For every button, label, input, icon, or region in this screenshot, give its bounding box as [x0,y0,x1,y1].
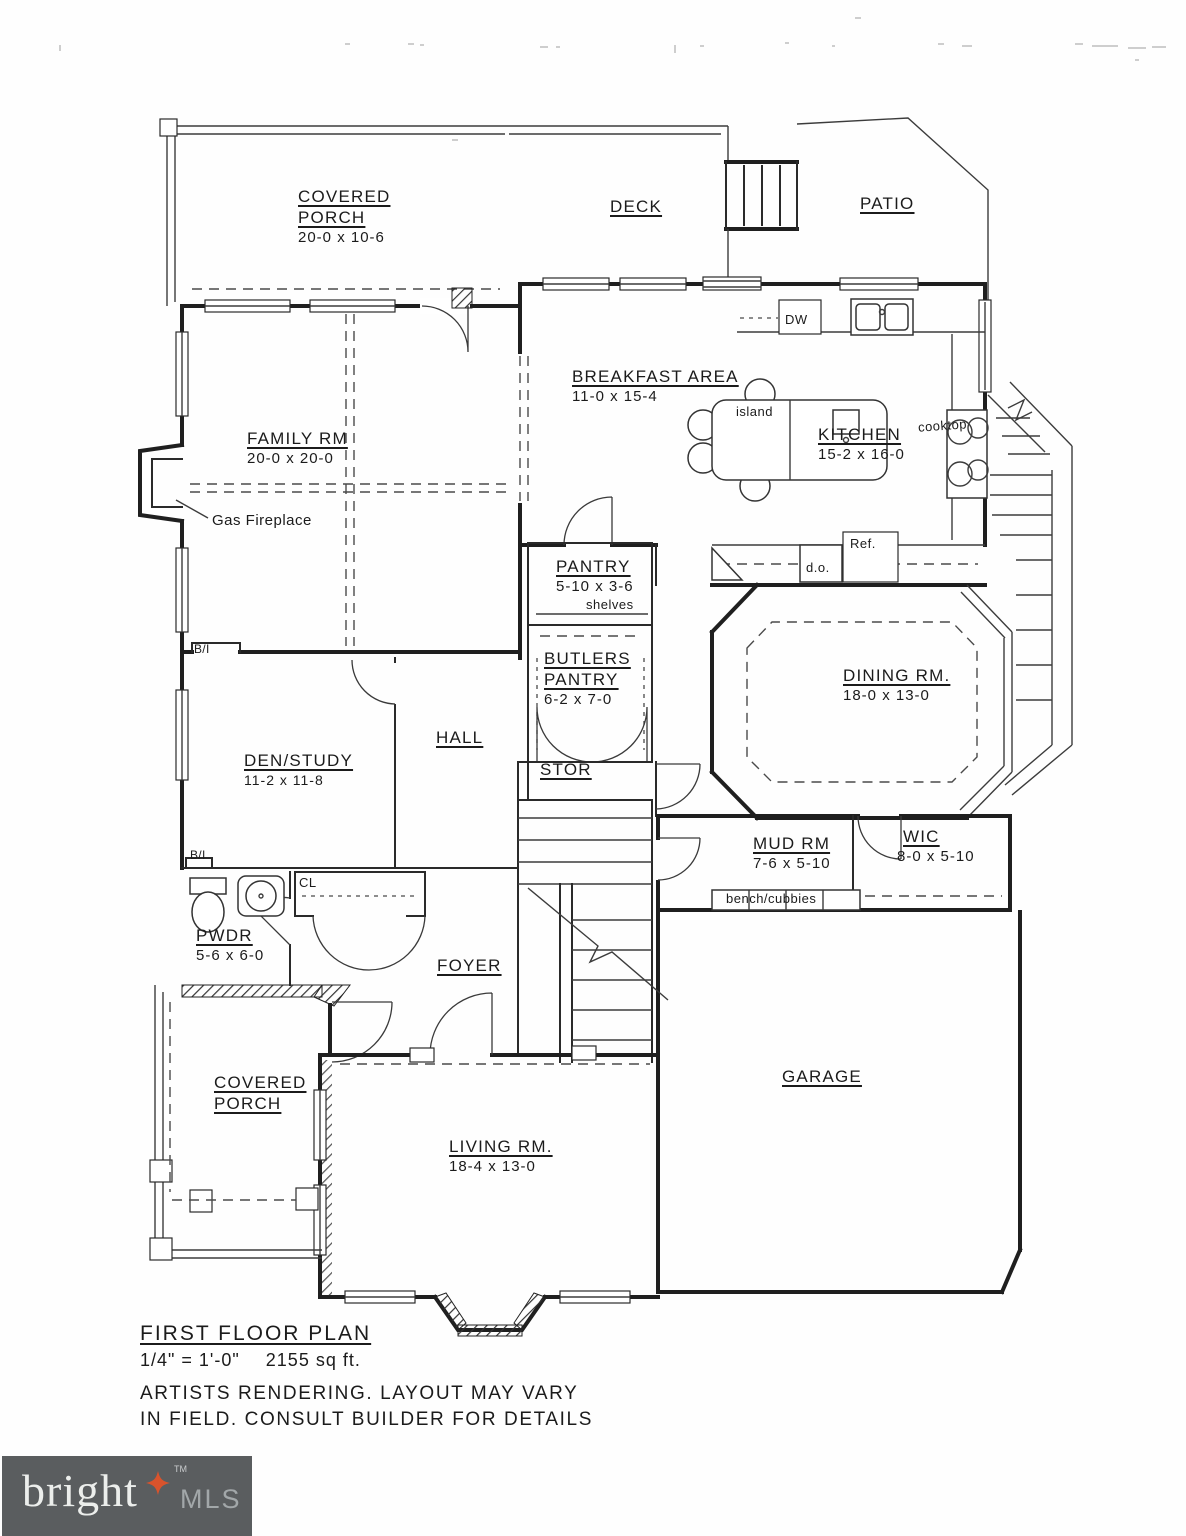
den-dims: 11-2 x 11-8 [244,772,353,790]
family-room-walls [140,284,528,658]
room-label-pwdr: PWDR 5-6 x 6-0 [196,925,264,966]
dw-text: DW [785,312,808,327]
breakfast-dims: 11-0 x 15-4 [572,388,739,407]
room-label-den: DEN/STUDY 11-2 x 11-8 [244,750,353,790]
scan-noise [60,18,1186,140]
room-label-kitchen: KITCHEN 15-2 x 16-0 [818,424,905,465]
room-label-living: LIVING RM. 18-4 x 13-0 [449,1136,553,1177]
breakfast-name: BREAKFAST AREA [572,366,739,387]
garage-walls [658,910,1020,1292]
do-label: d.o. [806,560,830,576]
room-label-mud: MUD RM 7-6 x 5-10 [753,833,831,874]
den-name: DEN/STUDY [244,750,353,771]
mud-name: MUD RM [753,833,830,854]
bi-label-1: B/I [194,642,210,657]
bi-label-2: B/I [190,848,206,863]
island-label: island [736,404,773,420]
plan-disclaimer: ARTISTS RENDERING. LAYOUT MAY VARY IN FI… [140,1381,593,1432]
room-label-butlers: BUTLERS PANTRY 6-2 x 7-0 [544,648,639,710]
island-text: island [736,404,773,419]
dining-name: DINING RM. [843,665,950,686]
room-label-dining: DINING RM. 18-0 x 13-0 [843,665,950,706]
bi-2-text: B/I [190,848,206,862]
living-name: LIVING RM. [449,1136,553,1157]
bench-cubbies-label: bench/cubbies [726,891,816,907]
cl-text: CL [299,875,317,890]
plan-area: 2155 sq ft. [266,1350,361,1370]
ref-text: Ref. [850,536,876,551]
plan-scale: 1/4" = 1'-0" [140,1350,240,1370]
plan-disclaimer-line2: IN FIELD. CONSULT BUILDER FOR DETAILS [140,1407,593,1433]
family-name: FAMILY RM [247,428,348,449]
cooktop-text: cooktop [917,416,967,434]
room-label-breakfast: BREAKFAST AREA 11-0 x 15-4 [572,366,739,407]
living-room-walls [314,1055,658,1336]
wic-name: WIC [903,826,940,847]
living-dims: 18-4 x 13-0 [449,1158,553,1177]
mud-dims: 7-6 x 5-10 [753,855,831,874]
cl-label: CL [299,875,317,891]
bi-1-text: B/I [194,642,210,656]
pwdr-name: PWDR [196,925,253,946]
dining-dims: 18-0 x 13-0 [843,687,950,706]
room-label-garage: GARAGE [782,1066,862,1088]
stor-name: STOR [540,759,592,780]
room-label-hall: HALL [436,727,483,749]
patio-name: PATIO [860,193,915,214]
deck-name: DECK [610,196,662,217]
room-label-wic: WIC 8-0 x 5-10 [903,826,975,867]
room-label-covered-porch-bottom: COVERED PORCH [214,1072,324,1115]
garage-name: GARAGE [782,1066,862,1087]
brightmls-star-icon [145,1470,171,1496]
room-label-pantry: PANTRY 5-10 x 3-6 [556,556,634,597]
shelves-text: shelves [586,597,634,612]
exterior-steps-right [988,382,1072,795]
plan-scale-line: 1/4" = 1'-0"2155 sq ft. [140,1350,593,1371]
wic-dims: 8-0 x 5-10 [897,848,975,867]
bench-cubbies-text: bench/cubbies [726,891,816,906]
ref-label: Ref. [850,536,876,552]
room-label-patio: PATIO [860,193,915,215]
room-label-deck: DECK [610,196,662,218]
butlers-name: BUTLERS PANTRY [544,648,639,691]
room-label-foyer: FOYER [437,955,502,977]
dw-label: DW [785,312,808,328]
room-label-family: FAMILY RM 20-0 x 20-0 [247,428,348,469]
do-text: d.o. [806,560,830,575]
plan-footer: FIRST FLOOR PLAN 1/4" = 1'-0"2155 sq ft.… [140,1322,593,1432]
covered-porch-bottom-name: COVERED PORCH [214,1072,324,1115]
covered-porch-top-name: COVERED PORCH [298,186,418,229]
butlers-dims: 6-2 x 7-0 [544,691,639,710]
brightmls-tm: TM [174,1464,187,1474]
family-dims: 20-0 x 20-0 [247,450,348,469]
pantry-dims: 5-10 x 3-6 [556,578,634,597]
kitchen-dims: 15-2 x 16-0 [818,446,905,465]
brightmls-brand-text: bright [22,1464,138,1517]
brightmls-suffix-text: MLS [180,1484,242,1515]
room-label-stor: STOR [540,759,592,781]
covered-porch-bottom-outline [150,985,322,1260]
plan-title: FIRST FLOOR PLAN [140,1322,593,1346]
cooktop-label: cooktop [917,416,967,436]
room-label-covered-porch-top: COVERED PORCH 20-0 x 10-6 [298,186,418,248]
floorplan-drawing [0,0,1186,1536]
pwdr-dims: 5-6 x 6-0 [196,947,264,966]
hall-name: HALL [436,727,483,748]
foyer-walls [182,985,658,1064]
foyer-name: FOYER [437,955,502,976]
covered-porch-top-dims: 20-0 x 10-6 [298,229,418,248]
floorplan-page: COVERED PORCH 20-0 x 10-6 DECK PATIO BRE… [0,0,1186,1536]
gas-fireplace-label: Gas Fireplace [212,512,312,531]
shelves-label: shelves [586,597,634,613]
stairs [518,800,668,1062]
kitchen-name: KITCHEN [818,424,901,445]
plan-disclaimer-line1: ARTISTS RENDERING. LAYOUT MAY VARY [140,1381,593,1407]
gas-fireplace-text: Gas Fireplace [212,512,312,529]
pantry-name: PANTRY [556,556,631,577]
brightmls-logo: bright TM MLS [2,1456,252,1536]
